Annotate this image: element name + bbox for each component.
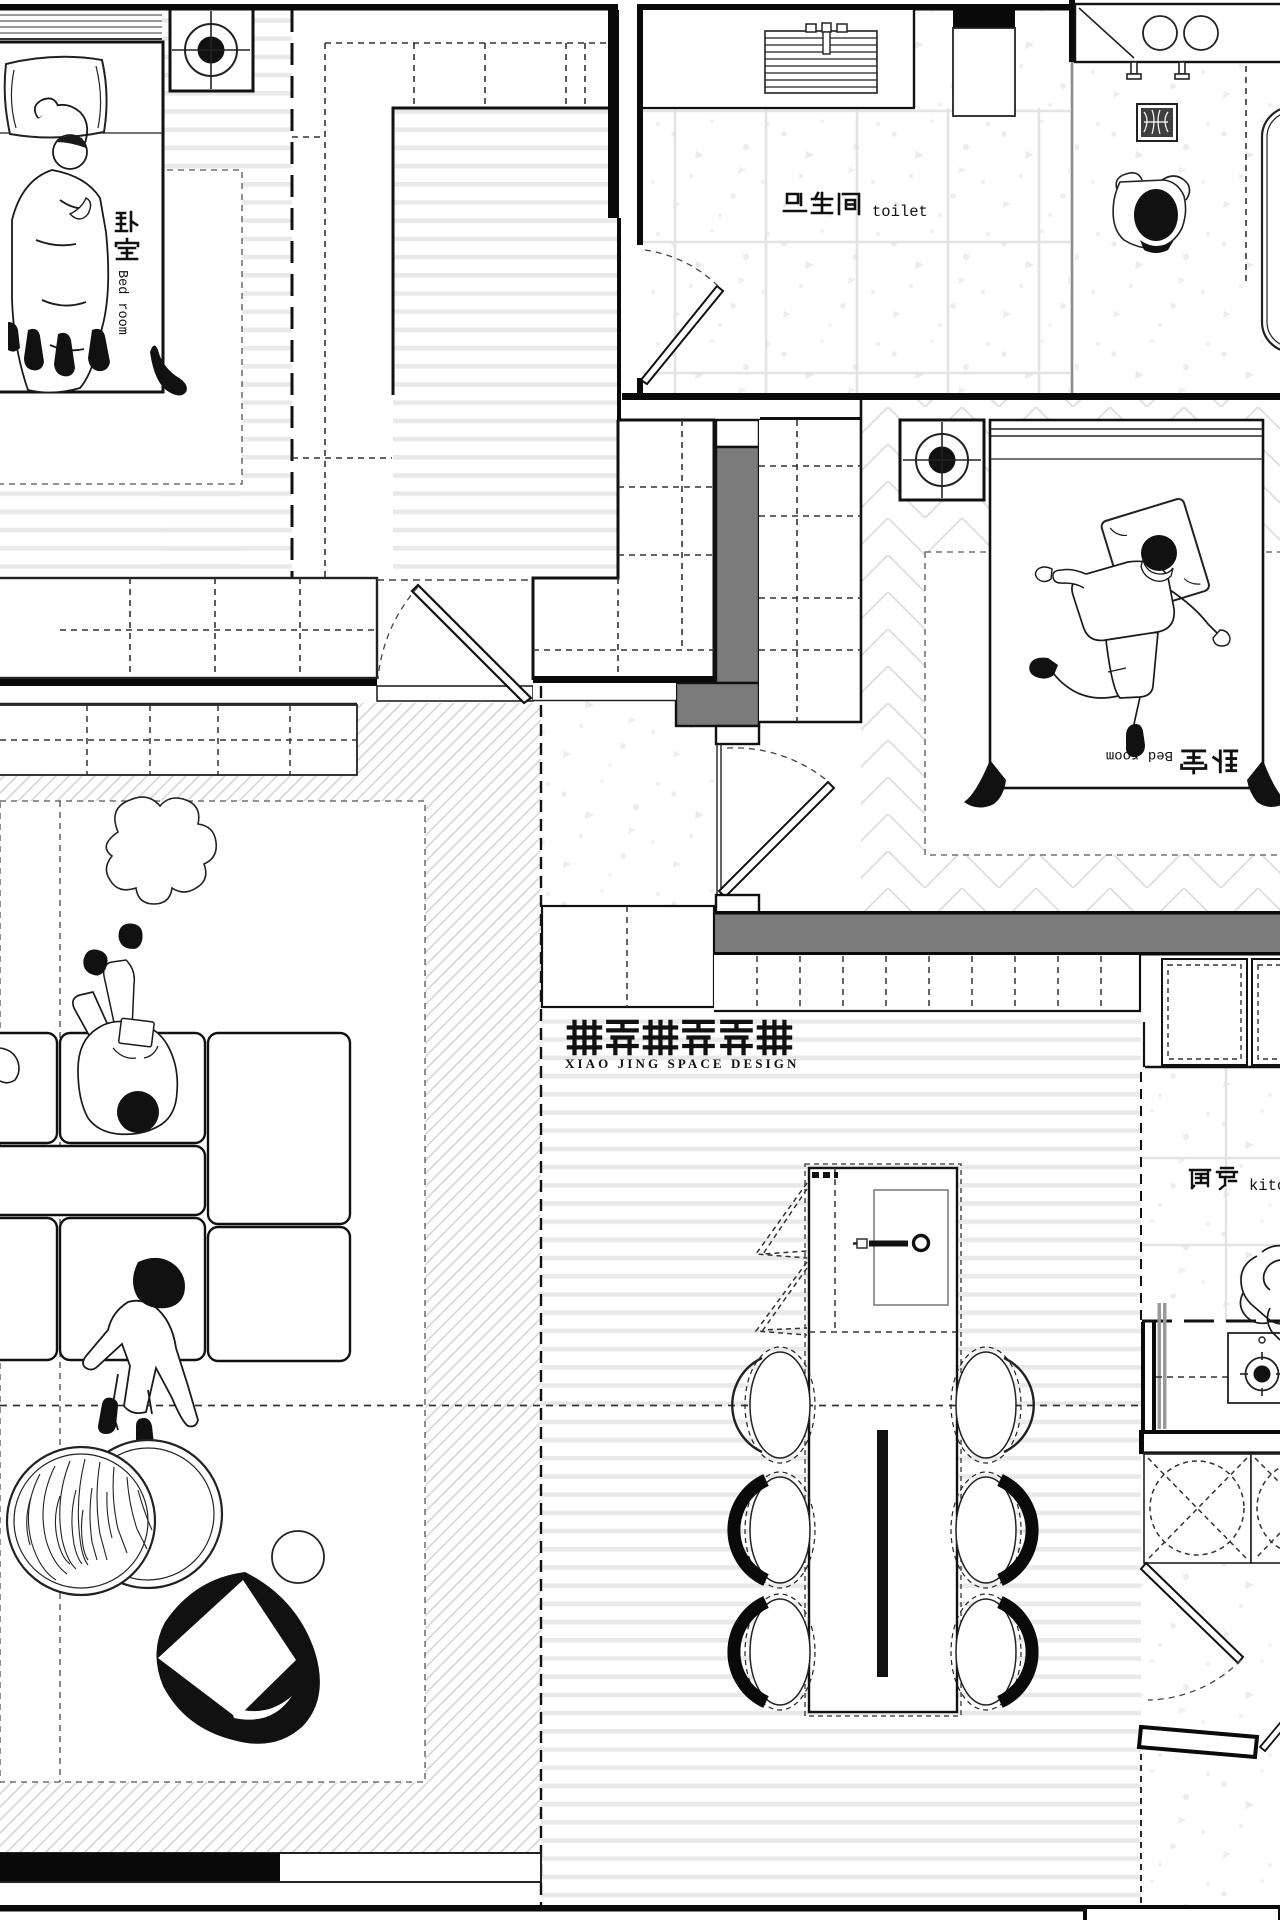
svg-text:Bed room: Bed room: [114, 270, 129, 335]
svg-text:kitchen: kitchen: [1249, 1177, 1280, 1195]
svg-text:Bed room: Bed room: [1106, 747, 1173, 763]
svg-text:XIAO JING SPACE DESIGN: XIAO JING SPACE DESIGN: [565, 1056, 799, 1071]
svg-text:toilet: toilet: [872, 203, 928, 221]
